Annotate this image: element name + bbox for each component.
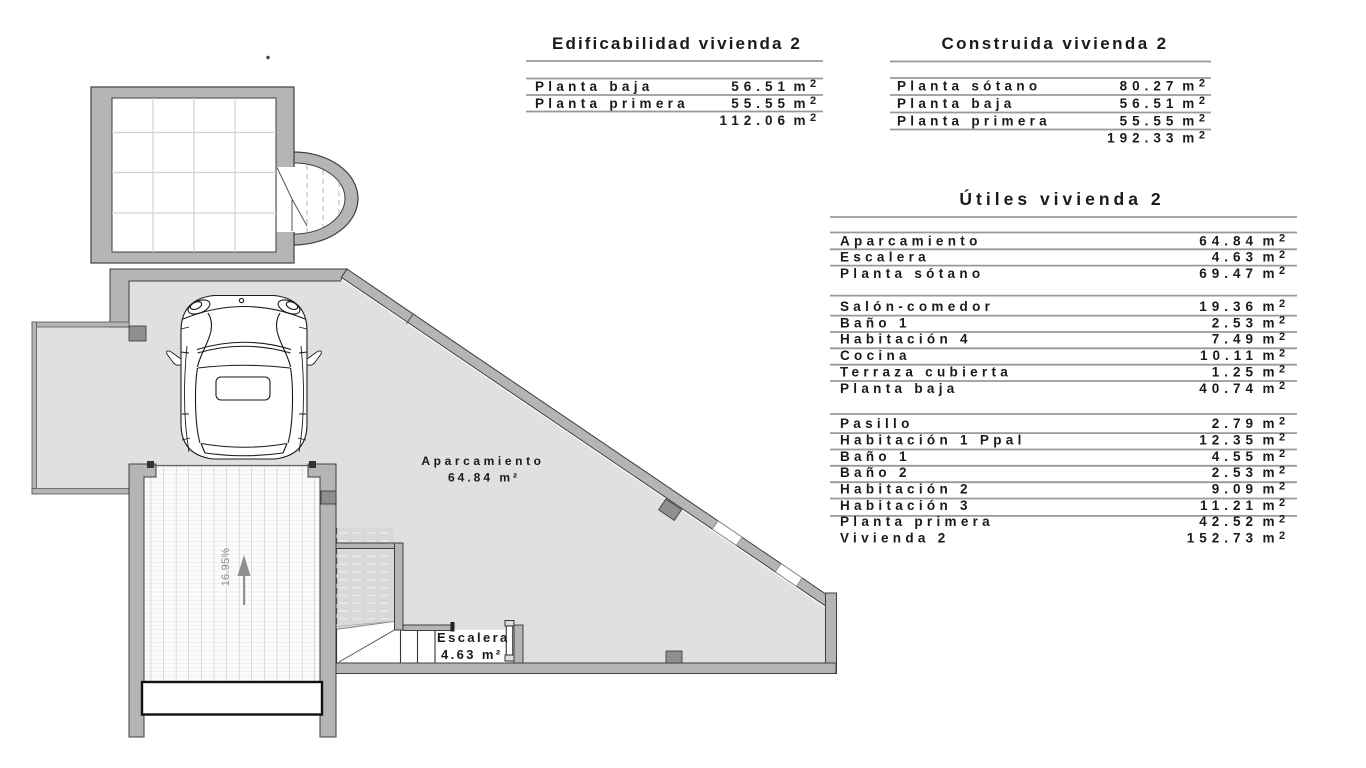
svg-text:Edificabilidad vivienda 2: Edificabilidad vivienda 2 <box>552 34 802 53</box>
svg-text:Construida vivienda 2: Construida vivienda 2 <box>941 34 1168 53</box>
svg-text:m2: m2 <box>794 78 817 94</box>
svg-text:m2: m2 <box>794 112 817 128</box>
svg-text:Habitación 3: Habitación 3 <box>840 498 972 513</box>
svg-text:69.47: 69.47 <box>1199 266 1258 281</box>
svg-text:Habitación 4: Habitación 4 <box>840 332 972 347</box>
svg-text:4.55: 4.55 <box>1212 449 1258 464</box>
svg-text:2.53: 2.53 <box>1212 465 1258 480</box>
svg-text:Planta baja: Planta baja <box>840 381 959 396</box>
svg-text:11.21: 11.21 <box>1200 498 1258 513</box>
svg-text:m2: m2 <box>794 95 817 111</box>
svg-text:m2: m2 <box>1263 364 1286 380</box>
svg-text:m2: m2 <box>1182 95 1205 111</box>
svg-text:Habitación 1 Ppal: Habitación 1 Ppal <box>840 433 1026 448</box>
svg-text:Aparcamiento: Aparcamiento <box>840 233 982 248</box>
svg-text:192.33: 192.33 <box>1107 131 1178 146</box>
svg-text:56.51: 56.51 <box>731 79 790 94</box>
svg-text:m2: m2 <box>1263 530 1286 546</box>
svg-text:16.95%: 16.95% <box>220 548 232 587</box>
svg-text:Vivienda 2: Vivienda 2 <box>840 531 950 546</box>
svg-text:m2: m2 <box>1263 315 1286 331</box>
svg-text:m2: m2 <box>1263 513 1286 529</box>
svg-text:Baño 2: Baño 2 <box>840 465 911 480</box>
svg-text:Planta baja: Planta baja <box>897 96 1016 111</box>
svg-text:9.09: 9.09 <box>1212 482 1258 497</box>
svg-text:Baño 1: Baño 1 <box>840 449 911 464</box>
svg-text:Planta primera: Planta primera <box>897 114 1051 129</box>
svg-text:m2: m2 <box>1263 298 1286 314</box>
svg-text:Planta primera: Planta primera <box>535 96 689 111</box>
svg-text:55.55: 55.55 <box>1120 114 1179 129</box>
svg-text:Terraza cubierta: Terraza cubierta <box>840 364 1012 379</box>
svg-text:m2: m2 <box>1263 464 1286 480</box>
svg-text:56.51: 56.51 <box>1120 96 1179 111</box>
svg-text:Planta baja: Planta baja <box>535 79 654 94</box>
svg-text:1.25: 1.25 <box>1212 364 1258 379</box>
svg-text:m2: m2 <box>1182 113 1205 129</box>
svg-text:m2: m2 <box>1263 432 1286 448</box>
svg-text:Habitación 2: Habitación 2 <box>840 482 972 497</box>
svg-text:m2: m2 <box>1263 481 1286 497</box>
svg-text:m2: m2 <box>1263 497 1286 513</box>
svg-text:55.55: 55.55 <box>731 96 790 111</box>
svg-text:Escalera: Escalera <box>840 250 930 265</box>
svg-text:m2: m2 <box>1182 78 1205 94</box>
svg-text:7.49: 7.49 <box>1212 332 1258 347</box>
svg-text:112.06: 112.06 <box>719 113 790 128</box>
svg-text:19.36: 19.36 <box>1199 299 1258 314</box>
svg-text:152.73: 152.73 <box>1187 531 1258 546</box>
svg-text:80.27: 80.27 <box>1120 79 1179 94</box>
svg-text:m2: m2 <box>1182 130 1205 146</box>
svg-text:Planta primera: Planta primera <box>840 514 994 529</box>
svg-text:m2: m2 <box>1263 415 1286 431</box>
svg-text:m2: m2 <box>1263 265 1286 281</box>
svg-text:2.53: 2.53 <box>1212 315 1258 330</box>
svg-text:2.79: 2.79 <box>1212 416 1258 431</box>
svg-text:m2: m2 <box>1263 448 1286 464</box>
svg-text:m2: m2 <box>1263 249 1286 265</box>
svg-text:Planta sótano: Planta sótano <box>840 266 984 281</box>
svg-text:m2: m2 <box>1263 331 1286 347</box>
svg-text:64.84 m²: 64.84 m² <box>448 471 520 485</box>
svg-text:m2: m2 <box>1263 347 1286 363</box>
svg-text:Pasillo: Pasillo <box>840 416 914 431</box>
svg-text:40.74: 40.74 <box>1199 381 1258 396</box>
svg-text:64.84: 64.84 <box>1199 233 1258 248</box>
svg-text:Útiles vivienda 2: Útiles vivienda 2 <box>959 188 1164 209</box>
svg-text:4.63 m²: 4.63 m² <box>441 647 503 662</box>
svg-text:12.35: 12.35 <box>1199 433 1258 448</box>
svg-text:4.63: 4.63 <box>1212 250 1258 265</box>
svg-text:Aparcamiento: Aparcamiento <box>421 454 544 468</box>
svg-text:m2: m2 <box>1263 380 1286 396</box>
svg-text:42.52: 42.52 <box>1199 514 1258 529</box>
svg-text:Cocina: Cocina <box>840 348 911 363</box>
svg-text:Planta sótano: Planta sótano <box>897 79 1041 94</box>
svg-text:Baño 1: Baño 1 <box>840 315 911 330</box>
svg-text:10.11: 10.11 <box>1200 348 1258 363</box>
svg-text:Escalera: Escalera <box>437 630 510 645</box>
svg-text:Salón-comedor: Salón-comedor <box>840 299 994 314</box>
svg-text:m2: m2 <box>1263 233 1286 249</box>
